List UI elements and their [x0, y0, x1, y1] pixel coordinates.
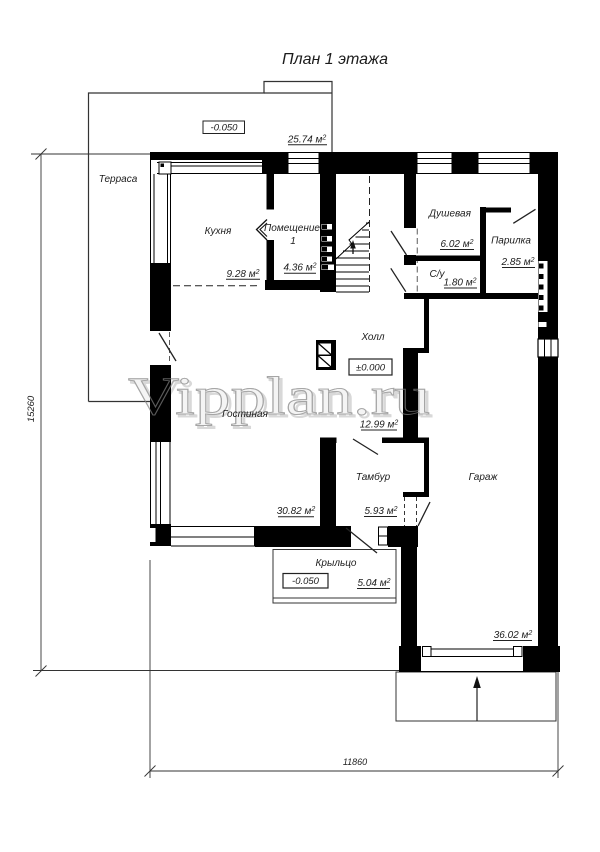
- svg-text:Крыльцо: Крыльцо: [316, 558, 357, 569]
- svg-text:План 1 этажа: План 1 этажа: [282, 51, 388, 68]
- svg-text:±0.000: ±0.000: [356, 363, 386, 374]
- svg-text:Тамбур: Тамбур: [356, 471, 391, 483]
- svg-text:9.28 м2: 9.28 м2: [226, 269, 259, 280]
- svg-text:1.80 м2: 1.80 м2: [443, 278, 476, 289]
- svg-text:11860: 11860: [343, 757, 367, 767]
- svg-text:Душевая: Душевая: [428, 209, 472, 220]
- svg-text:-0.050: -0.050: [211, 123, 239, 134]
- svg-text:5.04 м2: 5.04 м2: [357, 578, 390, 589]
- svg-text:6.02 м2: 6.02 м2: [440, 239, 473, 250]
- svg-text:25.74 м2: 25.74 м2: [287, 135, 327, 146]
- svg-text:1: 1: [290, 236, 296, 247]
- svg-text:Кухня: Кухня: [205, 226, 232, 237]
- svg-text:5.93 м2: 5.93 м2: [364, 506, 397, 517]
- svg-text:36.02 м2: 36.02 м2: [494, 630, 533, 641]
- svg-text:15260: 15260: [26, 395, 37, 422]
- svg-text:4.36 м2: 4.36 м2: [283, 263, 316, 274]
- svg-text:Терраса: Терраса: [99, 174, 138, 185]
- svg-text:30.82 м2: 30.82 м2: [277, 506, 316, 517]
- svg-text:Гараж: Гараж: [469, 472, 499, 483]
- svg-text:Гостиная: Гостиная: [222, 409, 268, 420]
- svg-text:Холл: Холл: [360, 332, 384, 343]
- svg-text:12.99 м2: 12.99 м2: [360, 420, 399, 431]
- svg-text:Помещение: Помещение: [264, 223, 320, 234]
- svg-text:2.85 м2: 2.85 м2: [500, 257, 534, 268]
- svg-text:-0.050: -0.050: [292, 576, 320, 587]
- svg-text:Парилка: Парилка: [491, 236, 531, 247]
